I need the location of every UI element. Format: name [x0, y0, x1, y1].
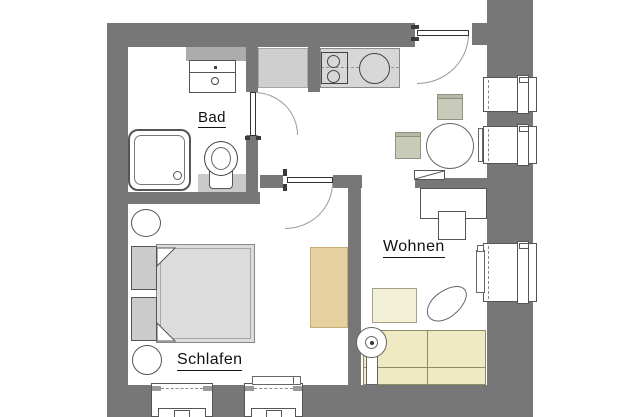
- window-frame-line: [488, 246, 489, 299]
- stove-burner-icon: [327, 70, 340, 83]
- kitchen-pier: [308, 43, 320, 92]
- entrance-door-swing-arc: [417, 34, 469, 84]
- exterior-wall-top: [107, 23, 415, 47]
- washbasin: [189, 60, 236, 93]
- washbasin-edge-line: [190, 72, 235, 73]
- floor-lamp-bulb-icon: [370, 341, 374, 345]
- pouf: [421, 279, 474, 329]
- kitchen-sink: [359, 53, 390, 84]
- window-shutter-icon: [517, 124, 529, 166]
- window-frame-cap: [152, 386, 161, 391]
- window-shutter-icon: [251, 408, 296, 417]
- window: [151, 383, 213, 417]
- window: [483, 243, 537, 302]
- floor-lamp: [356, 327, 387, 358]
- entry-door-jamb: [472, 23, 487, 45]
- sideboard-diagonal: [415, 171, 444, 179]
- room-label-bathroom: Bad: [198, 109, 226, 128]
- shower-drain-icon: [173, 171, 182, 180]
- window-frame-cap: [203, 386, 212, 391]
- bedroom-wall-right: [333, 175, 362, 188]
- washbasin-drain-icon: [211, 77, 219, 85]
- radiator-valve: [293, 376, 301, 385]
- window-shutter-icon: [158, 408, 206, 417]
- sofa-seat-line: [364, 367, 485, 368]
- dining-table: [426, 123, 474, 169]
- bedroom-door-leaf: [287, 177, 333, 183]
- window-frame-cap: [245, 386, 254, 391]
- chair-backrest: [396, 133, 420, 137]
- bathroom-wall-bottom: [107, 192, 260, 204]
- stool: [132, 345, 162, 375]
- room-label-living: Wohnen: [383, 238, 445, 258]
- sofa-cushion-divider: [427, 331, 428, 384]
- window-frame-line: [488, 129, 489, 161]
- toilet-bowl-inner: [211, 147, 231, 170]
- bed-pillows: [155, 245, 179, 344]
- shower: [128, 129, 191, 191]
- door-hinge-icon: [411, 25, 419, 29]
- window-shutter-icon: [517, 241, 529, 304]
- window-frame-line: [488, 80, 489, 109]
- coffee-table: [372, 288, 417, 323]
- door-hinge-icon: [256, 136, 261, 140]
- window: [244, 383, 303, 417]
- rug: [310, 247, 348, 328]
- bathroom-wall-lower: [246, 135, 258, 192]
- window-frame-line: [254, 388, 293, 389]
- dining-chair: [437, 94, 463, 120]
- stool: [131, 209, 161, 237]
- dining-chair: [395, 132, 421, 159]
- floor-plan: Bad Wohnen Schlafen: [0, 0, 640, 417]
- desk-chair: [438, 211, 466, 240]
- door-hinge-icon: [411, 37, 419, 41]
- window-shutter-icon: [517, 75, 529, 114]
- bedroom-door-swing-arc: [285, 183, 333, 229]
- washbasin-tap-icon: [214, 66, 217, 69]
- pillow-icon: [157, 248, 175, 266]
- pillow-icon: [157, 323, 175, 341]
- kitchen-cabinet: [258, 48, 308, 88]
- nightstand: [131, 297, 157, 341]
- exterior-wall-left: [107, 47, 128, 385]
- radiator: [476, 250, 485, 293]
- window: [483, 77, 537, 112]
- bedroom-wall-stub: [260, 175, 283, 188]
- floor-lamp-stem: [366, 355, 378, 385]
- chair-backrest: [438, 95, 462, 99]
- bathroom-door-swing-arc: [254, 92, 298, 135]
- door-hinge-icon: [245, 136, 250, 140]
- window-frame-line: [161, 388, 203, 389]
- window-frame-cap: [293, 386, 302, 391]
- window: [483, 126, 537, 164]
- bathroom-shelf: [186, 47, 246, 61]
- door-hinge-icon: [283, 169, 287, 176]
- sideboard: [414, 170, 445, 180]
- bathroom-wall-upper: [246, 47, 258, 92]
- radiator-valve: [477, 245, 484, 252]
- radiator: [478, 128, 483, 162]
- room-label-bedroom: Schlafen: [177, 351, 242, 371]
- toilet-bowl: [204, 141, 238, 176]
- exterior-wall-right: [487, 0, 533, 417]
- stove-burner-icon: [327, 55, 340, 68]
- nightstand: [131, 246, 157, 290]
- door-hinge-icon: [283, 184, 287, 191]
- bathroom-door-leaf: [250, 92, 256, 136]
- interior-dividing-wall: [348, 188, 361, 387]
- entrance-door-leaf: [417, 30, 469, 36]
